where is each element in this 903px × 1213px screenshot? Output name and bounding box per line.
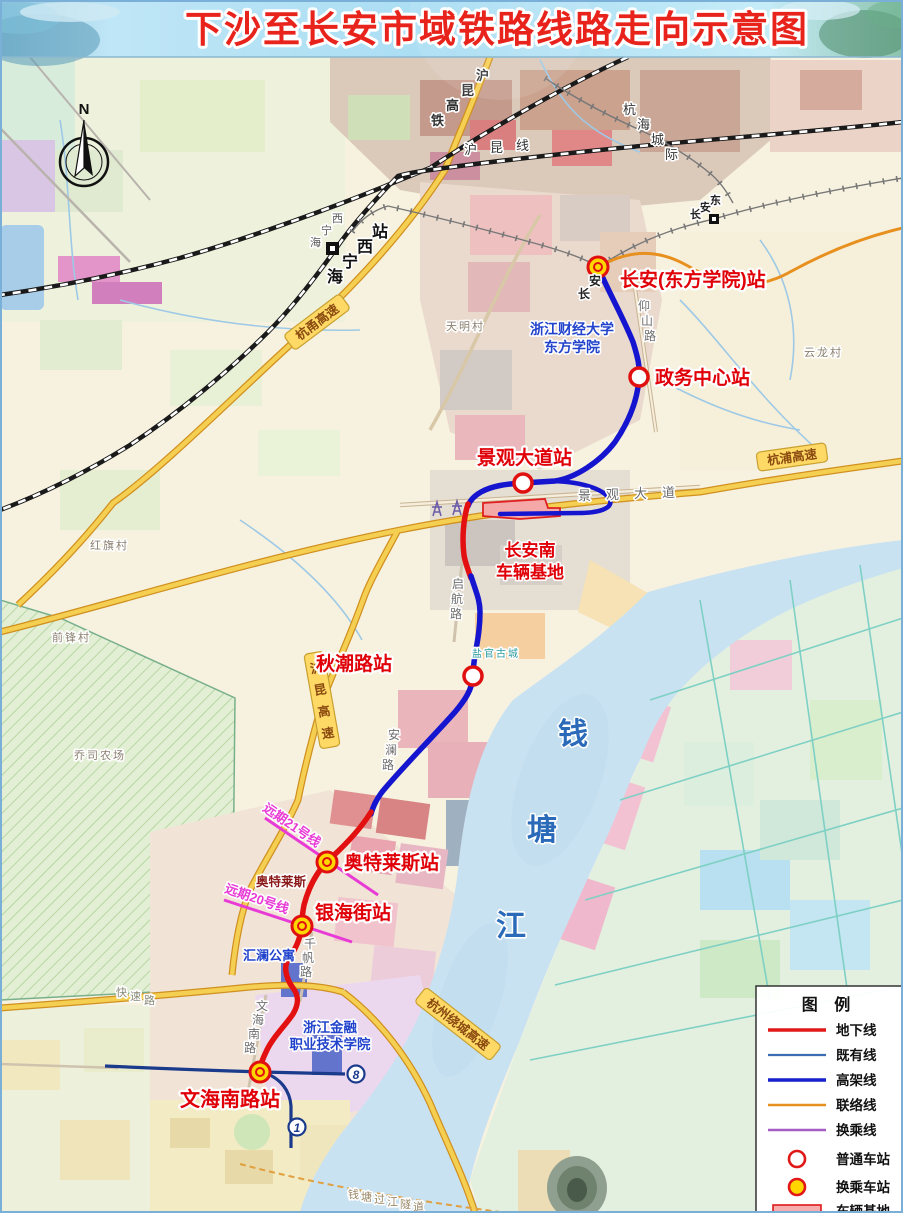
compass-north-label: N — [79, 101, 90, 118]
legend-elevated: 高架线 — [836, 1072, 877, 1088]
line1-badge: 1 — [294, 1121, 301, 1135]
label-depot-line1: 长安南 — [505, 540, 556, 560]
label-station-wenhai: 文海南路站 — [180, 1087, 280, 1111]
label-station-changan: 长安(东方学院)站 — [620, 268, 766, 291]
label-caijing-univ-line1: 浙江财经大学 — [530, 321, 614, 337]
legend-existing: 既有线 — [836, 1047, 877, 1063]
label-yanguan: 盐官古城 — [472, 647, 520, 660]
legend-underground: 地下线 — [836, 1022, 877, 1038]
label-station-aotelaisi: 奥特莱斯站 — [344, 851, 439, 874]
station-marker-yinhai — [292, 916, 312, 936]
label-depot-line2: 车辆基地 — [496, 562, 564, 582]
label-station-zhengwu: 政务中心站 — [655, 366, 750, 389]
station-marker-aotelaisi — [317, 852, 337, 872]
label-station-yinhai: 银海街站 — [315, 901, 391, 924]
label-jinrong-college-line1: 浙江金融 — [303, 1019, 357, 1035]
label-station-qiuchao: 秋潮路站 — [316, 652, 392, 675]
map-canvas: 8 1 N 沪昆高铁 沪昆线 杭海城际 海宁西站 海宁西 长安 长安东 钱塘江 … — [0, 0, 903, 1213]
label-qihang-road: 启航路 — [450, 577, 464, 621]
legend: 图 例 地下线 既有线 高架线 联络线 换乘线 普通车站 换乘车站 车辆基地 — [756, 986, 902, 1213]
map-screenshot: 8 1 N 沪昆高铁 沪昆线 杭海城际 海宁西站 海宁西 长安 长安东 钱塘江 … — [0, 0, 903, 1213]
label-qianfeng-village: 前锋村 — [52, 630, 91, 644]
page-title: 下沙至长安市域铁路线路走向示意图 — [185, 8, 809, 50]
station-marker-zhengwu — [630, 368, 648, 386]
label-tianming-village: 天明村 — [446, 319, 485, 333]
label-yunlong-village: 云龙村 — [804, 345, 843, 359]
label-huilan-apartment: 汇澜公寓 — [243, 948, 295, 963]
line8-badge: 8 — [353, 1068, 360, 1082]
label-qiaosi-farm: 乔司农场 — [74, 748, 126, 762]
station-marker-wenhai — [250, 1062, 270, 1082]
station-marker-jingguan — [514, 474, 532, 492]
legend-ordinary-station: 普通车站 — [836, 1151, 890, 1167]
label-station-jingguan: 景观大道站 — [477, 446, 572, 469]
legend-transfer-line: 换乘线 — [836, 1122, 877, 1138]
station-marker-qiuchao — [464, 667, 482, 685]
label-jinrong-college-line2: 职业技术学院 — [290, 1036, 371, 1052]
legend-transfer-station: 换乘车站 — [836, 1179, 890, 1195]
legend-connecting: 联络线 — [836, 1097, 877, 1113]
label-hongqi-village: 红旗村 — [90, 538, 129, 552]
label-caijing-univ-line2: 东方学院 — [544, 339, 600, 355]
legend-title: 图 例 — [802, 995, 856, 1014]
label-outlets-mall: 奥特莱斯 — [256, 874, 307, 889]
